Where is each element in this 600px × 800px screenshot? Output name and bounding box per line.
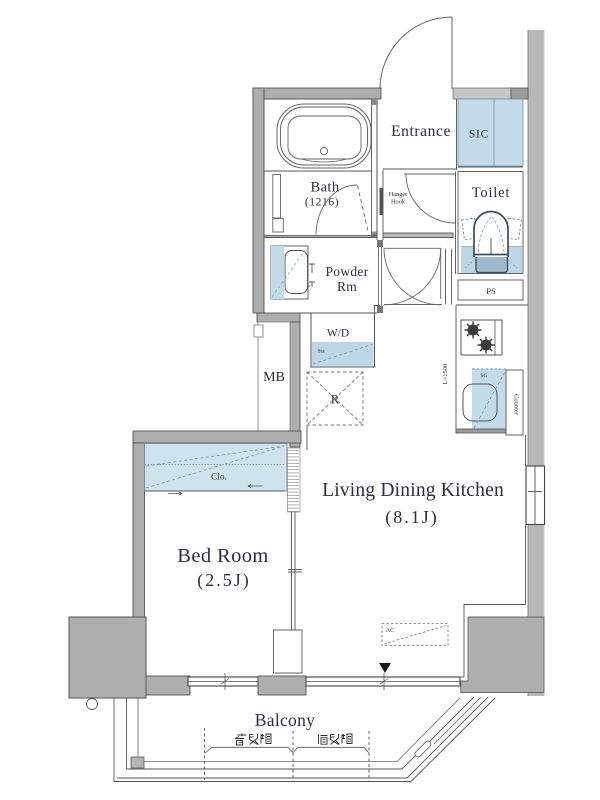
svg-text:R: R xyxy=(331,393,340,407)
svg-text:MB: MB xyxy=(263,370,285,385)
svg-text:Powder: Powder xyxy=(325,264,368,279)
svg-text:AC: AC xyxy=(385,627,394,634)
svg-text:SIC: SIC xyxy=(469,129,489,141)
svg-text:Rm: Rm xyxy=(337,279,357,294)
svg-text:Balcony: Balcony xyxy=(255,710,315,730)
svg-text:(1216): (1216) xyxy=(305,197,339,209)
svg-text:L=1500: L=1500 xyxy=(442,364,449,385)
svg-text:W/D: W/D xyxy=(327,328,349,340)
svg-text:Sta: Sta xyxy=(317,349,325,355)
svg-text:Hanger: Hanger xyxy=(389,191,408,198)
svg-text:Hook: Hook xyxy=(391,199,406,206)
svg-text:Toilet: Toilet xyxy=(472,185,510,201)
svg-text:Bed Room: Bed Room xyxy=(177,545,268,567)
svg-text:(8.1J): (8.1J) xyxy=(385,507,439,528)
svg-text:PS: PS xyxy=(486,286,496,296)
svg-text:Counter: Counter xyxy=(513,394,520,416)
svg-text:Living Dining Kitchen: Living Dining Kitchen xyxy=(322,480,504,501)
svg-text:SG: SG xyxy=(480,373,487,379)
svg-text:(2.5J): (2.5J) xyxy=(197,570,251,591)
svg-text:Entrance: Entrance xyxy=(391,123,451,140)
svg-text:Bath: Bath xyxy=(311,180,340,196)
svg-text:Clo.: Clo. xyxy=(211,473,227,483)
